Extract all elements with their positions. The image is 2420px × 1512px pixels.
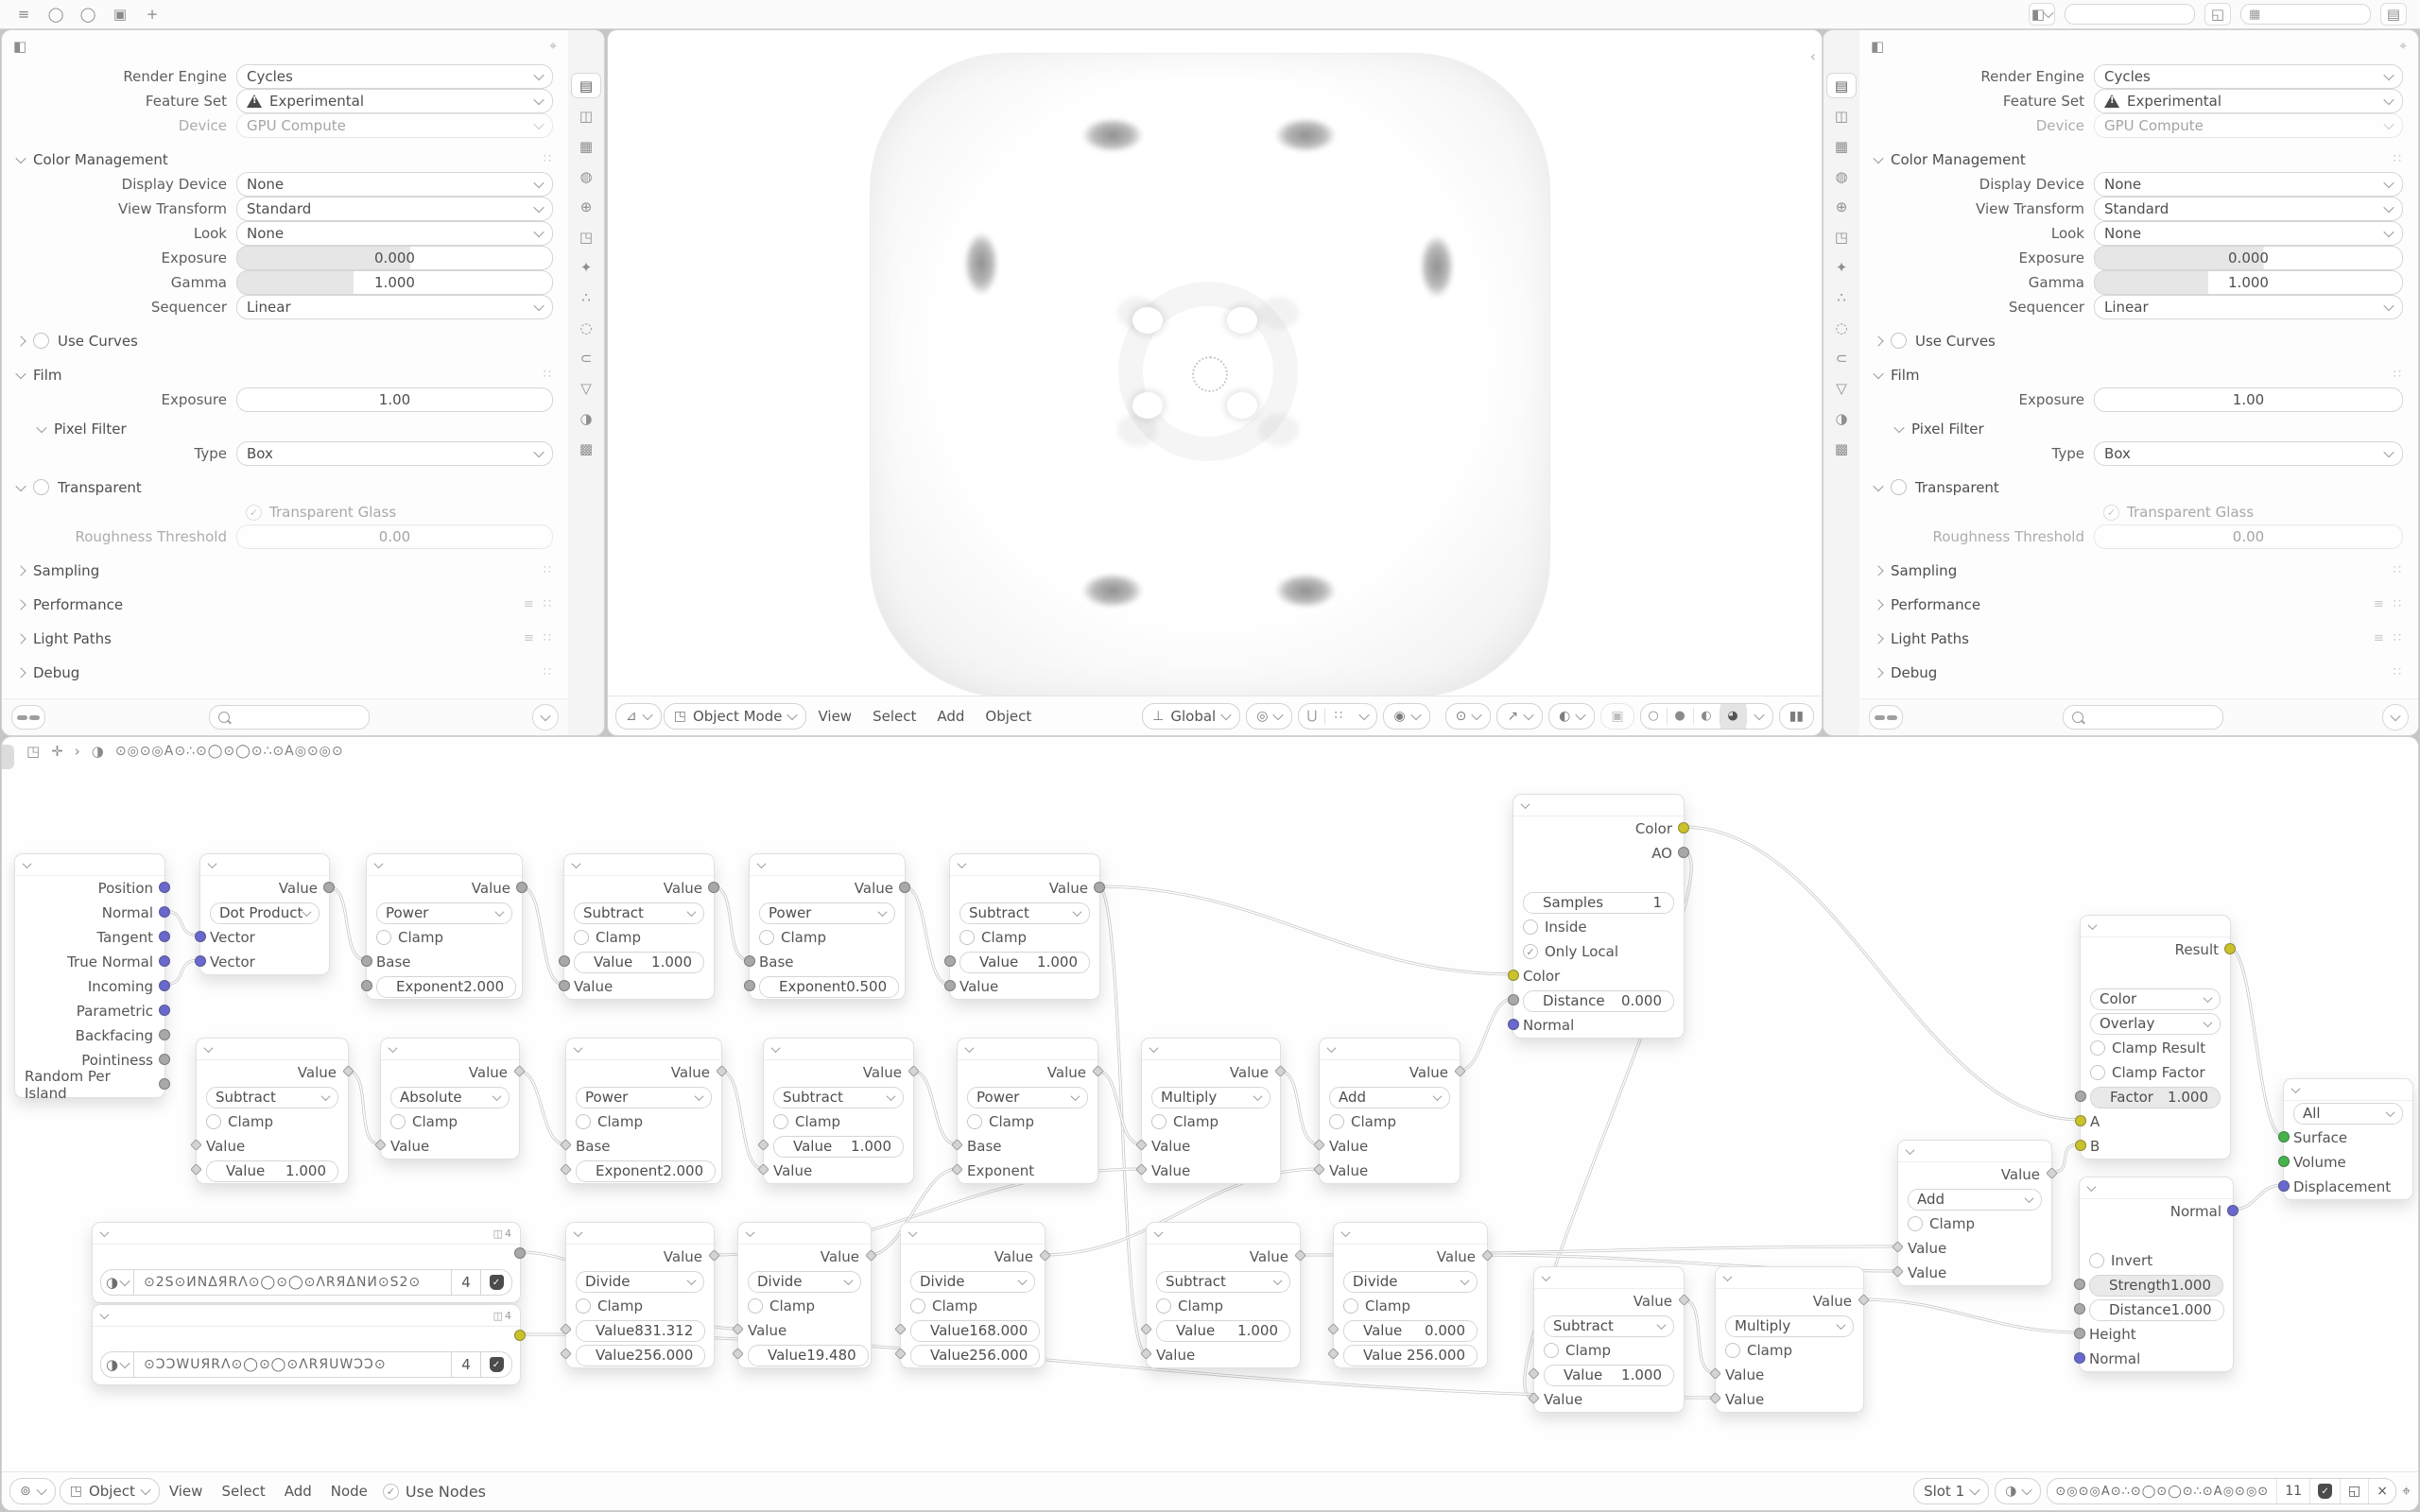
- operation-dropdown-multiply[interactable]: Multiply: [1151, 1087, 1270, 1108]
- node-menu-add[interactable]: Add: [275, 1483, 321, 1500]
- value-field-distance[interactable]: Distance0.000: [1523, 990, 1674, 1012]
- value-field-value[interactable]: Value0.000: [1343, 1320, 1478, 1342]
- prop-dropdown-render-engine[interactable]: Cycles: [2094, 64, 2403, 89]
- socket-a[interactable]: [2075, 1115, 2086, 1126]
- operation-dropdown-power[interactable]: Power: [376, 902, 512, 924]
- socket-base[interactable]: [361, 955, 372, 967]
- checkbox[interactable]: ✓: [246, 505, 262, 521]
- socket-output[interactable]: [514, 1247, 526, 1259]
- filter-toggle-button[interactable]: [1869, 705, 1903, 730]
- prop-dropdown-sequencer[interactable]: Linear: [2094, 295, 2403, 319]
- toggle-section-use-curves[interactable]: Use Curves: [1859, 328, 2414, 353]
- node-header[interactable]: [566, 1039, 721, 1060]
- check-transparent-glass[interactable]: ✓Transparent Glass: [1859, 500, 2414, 524]
- socket-color[interactable]: [1678, 822, 1689, 833]
- section-pixel-filter[interactable]: Pixel Filter: [1859, 416, 2414, 441]
- node-header[interactable]: ◫4: [93, 1223, 520, 1245]
- math-divide-3[interactable]: ValueDivideClampValue168.000Value256.000: [900, 1222, 1046, 1368]
- tab-constraints[interactable]: ⊂: [1827, 346, 1856, 369]
- socket-value[interactable]: [899, 882, 910, 893]
- geometry-node[interactable]: PositionNormalTangentTrue NormalIncoming…: [14, 853, 165, 1098]
- node-header[interactable]: [381, 1039, 519, 1060]
- tab-world[interactable]: ⊕: [1827, 195, 1856, 218]
- properties-search-input[interactable]: [209, 705, 370, 730]
- add-workspace-icon[interactable]: +: [140, 4, 164, 25]
- socket-factor[interactable]: [2075, 1091, 2086, 1102]
- tab-modifiers[interactable]: ✦: [1827, 255, 1856, 279]
- prop-dropdown-feature-set[interactable]: Experimental: [236, 89, 553, 113]
- node-header[interactable]: [15, 854, 164, 876]
- socket-random-per-island[interactable]: [159, 1078, 170, 1090]
- node-header[interactable]: [950, 854, 1099, 876]
- snap-magnet-icon[interactable]: ⋃: [1299, 704, 1324, 729]
- datablock-users-count[interactable]: 4: [452, 1269, 481, 1296]
- checkbox-clamp[interactable]: Clamp: [1725, 1342, 1792, 1359]
- prop-dropdown-look[interactable]: None: [2094, 221, 2403, 246]
- math-divide-2[interactable]: ValueDivideClampValueValue19.480: [737, 1222, 872, 1368]
- value-field-value[interactable]: Value1.000: [1544, 1365, 1674, 1386]
- operation-dropdown-color[interactable]: Color: [2090, 988, 2221, 1010]
- prop-field-exposure[interactable]: 1.00: [236, 387, 553, 412]
- socket-parametric[interactable]: [159, 1005, 170, 1016]
- toggle-section-transparent[interactable]: Transparent: [1859, 474, 2414, 500]
- fake-user-shield[interactable]: ✓: [481, 1269, 512, 1296]
- viewport-canvas[interactable]: ‹: [608, 30, 1822, 696]
- quick-field-2[interactable]: ▦: [2240, 4, 2371, 25]
- checkbox-clamp[interactable]: Clamp: [959, 929, 1027, 946]
- material-users-count[interactable]: 11: [2276, 1479, 2309, 1503]
- section-debug[interactable]: Debug∷: [2, 660, 564, 685]
- operation-dropdown-power[interactable]: Power: [759, 902, 895, 924]
- tab-constraints[interactable]: ⊂: [572, 346, 600, 369]
- section-debug[interactable]: Debug∷: [1859, 660, 2414, 685]
- node-header[interactable]: [1898, 1141, 2051, 1162]
- value-field-value[interactable]: Value168.000: [910, 1320, 1040, 1342]
- socket-normal[interactable]: [1508, 1019, 1519, 1030]
- checkbox-clamp[interactable]: Clamp: [1329, 1113, 1396, 1130]
- node-header[interactable]: [1147, 1223, 1300, 1245]
- preset-list-icon[interactable]: ≡: [524, 597, 534, 611]
- math-add-1[interactable]: ValueAddClampValueValue: [1319, 1038, 1461, 1184]
- node-header[interactable]: [738, 1223, 871, 1245]
- section-light-paths[interactable]: Light Paths≡∷: [2, 626, 564, 651]
- value-field-value[interactable]: Value1.000: [1156, 1320, 1290, 1342]
- browse-id-button[interactable]: ◑: [100, 1351, 134, 1378]
- socket-normal[interactable]: [159, 906, 170, 918]
- ambient-occlusion-node[interactable]: ColorAOSamples1Inside✓Only LocalColorDis…: [1512, 794, 1685, 1039]
- operation-dropdown-power[interactable]: Power: [967, 1087, 1088, 1108]
- prop-field-exposure[interactable]: 1.00: [2094, 387, 2403, 412]
- operation-dropdown-overlay[interactable]: Overlay: [2090, 1013, 2221, 1035]
- value-field-value[interactable]: Value256.000: [576, 1345, 705, 1366]
- socket-value[interactable]: [559, 955, 570, 967]
- vector-math-dot-product[interactable]: ValueDot ProductVectorVector: [199, 853, 330, 975]
- node-header[interactable]: [1142, 1039, 1280, 1060]
- socket-normal[interactable]: [2227, 1205, 2238, 1216]
- gizmos-dropdown[interactable]: ↗: [1496, 703, 1543, 730]
- proportional-edit-dropdown[interactable]: ◉: [1383, 703, 1429, 730]
- section-sampling[interactable]: Sampling∷: [2, 558, 564, 583]
- prop-dropdown-view-transform[interactable]: Standard: [236, 197, 553, 221]
- checkbox-clamp[interactable]: Clamp: [576, 1113, 643, 1130]
- fake-user-shield[interactable]: ✓: [481, 1351, 512, 1378]
- value-field-value[interactable]: Value1.000: [959, 952, 1090, 973]
- tab-world[interactable]: ⊕: [572, 195, 600, 218]
- operation-dropdown-subtract[interactable]: Subtract: [206, 1087, 338, 1108]
- pin-icon[interactable]: ⌖: [2399, 39, 2407, 54]
- node-header[interactable]: [2080, 1177, 2233, 1199]
- operation-dropdown-subtract[interactable]: Subtract: [773, 1087, 904, 1108]
- node-header[interactable]: [566, 1223, 714, 1245]
- tab-particles[interactable]: ∴: [572, 285, 600, 309]
- checkbox-clamp[interactable]: Clamp: [574, 929, 641, 946]
- shading-options-caret[interactable]: [1747, 704, 1772, 729]
- bump-node[interactable]: NormalInvertStrength1.000Distance1.000He…: [2079, 1177, 2234, 1372]
- prop-dropdown-display-device[interactable]: None: [2094, 172, 2403, 197]
- socket-backfacing[interactable]: [159, 1029, 170, 1040]
- section-checkbox[interactable]: [33, 333, 49, 349]
- value-field-value[interactable]: Value1.000: [574, 952, 704, 973]
- math-power-2[interactable]: ValuePowerClampBaseExponent0.500: [749, 853, 906, 1000]
- operation-dropdown-power[interactable]: Power: [576, 1087, 712, 1108]
- preset-list-icon[interactable]: ≡: [2374, 597, 2384, 611]
- display-settings-icon[interactable]: ◧: [2029, 3, 2055, 26]
- shader-type-dropdown[interactable]: ◳ Object: [60, 1478, 160, 1504]
- prop-dropdown-sequencer[interactable]: Linear: [236, 295, 553, 319]
- section-pixel-filter[interactable]: Pixel Filter: [2, 416, 564, 441]
- duplicate-icon[interactable]: ◱: [2204, 3, 2231, 26]
- socket-value[interactable]: [323, 882, 335, 893]
- socket-vector[interactable]: [195, 955, 206, 967]
- shading-wireframe-button[interactable]: ○: [1641, 704, 1667, 729]
- checkbox[interactable]: ✓: [2103, 505, 2119, 521]
- check-transparent-glass[interactable]: ✓Transparent Glass: [2, 500, 564, 524]
- prop-dropdown-look[interactable]: None: [236, 221, 553, 246]
- prop-slider-gamma[interactable]: 1.000: [2094, 270, 2403, 295]
- value-field-value[interactable]: Value1.000: [773, 1136, 904, 1158]
- browse-material-dropdown[interactable]: ◑: [1995, 1478, 2041, 1504]
- value-field-value[interactable]: Value1.000: [206, 1160, 338, 1182]
- math-subtract-2[interactable]: ValueSubtractClampValue1.000Value: [949, 853, 1100, 1000]
- node-header[interactable]: [1534, 1267, 1684, 1289]
- tab-data[interactable]: ▽: [1827, 376, 1856, 400]
- math-subtract-1[interactable]: ValueSubtractClampValue1.000Value: [563, 853, 715, 1000]
- section-checkbox[interactable]: [1891, 479, 1907, 495]
- prop-field-roughness-threshold[interactable]: 0.00: [2094, 524, 2403, 549]
- slot-dropdown[interactable]: Slot 1: [1913, 1478, 1989, 1504]
- operation-dropdown-divide[interactable]: Divide: [748, 1271, 861, 1293]
- checkbox-clamp[interactable]: Clamp: [967, 1113, 1034, 1130]
- tab-modifiers[interactable]: ✦: [572, 255, 600, 279]
- socket-strength[interactable]: [2074, 1279, 2085, 1290]
- app-menu-icon[interactable]: ≡: [11, 4, 36, 25]
- section-color-management[interactable]: Color Management∷: [1859, 146, 2414, 172]
- object-visibility-dropdown[interactable]: ⊙: [1445, 703, 1492, 730]
- preset-list-icon[interactable]: ≡: [524, 631, 534, 645]
- tab-scene[interactable]: ◍: [1827, 164, 1856, 188]
- math-subtract-3[interactable]: ValueSubtractClampValueValue1.000: [196, 1038, 349, 1184]
- prop-dropdown-view-transform[interactable]: Standard: [2094, 197, 2403, 221]
- shading-solid-button[interactable]: ●: [1668, 704, 1693, 729]
- math-power-4[interactable]: ValuePowerClampBaseExponent: [957, 1038, 1098, 1184]
- operation-dropdown-divide[interactable]: Divide: [910, 1271, 1035, 1293]
- value-field-exponent[interactable]: Exponent2.000: [576, 1160, 716, 1182]
- toggle-section-use-curves[interactable]: Use Curves: [2, 328, 564, 353]
- new-material-button[interactable]: ◱: [2340, 1479, 2368, 1503]
- section-checkbox[interactable]: [33, 479, 49, 495]
- datablock-name-field[interactable]: ⊙ƆƆWUЯRΛ⊙◯⊙◯⊙ΛRЯUWƆƆ⊙: [134, 1351, 452, 1378]
- value-field-distance[interactable]: Distance1.000: [2089, 1299, 2224, 1321]
- tab-object[interactable]: ◳: [572, 225, 600, 249]
- checkbox-clamp[interactable]: Clamp: [1156, 1297, 1223, 1314]
- socket-output[interactable]: [514, 1330, 526, 1341]
- socket-pointiness[interactable]: [159, 1054, 170, 1065]
- pin-icon[interactable]: ⌖: [2402, 1482, 2411, 1501]
- menu-object[interactable]: Object: [976, 708, 1041, 725]
- operation-dropdown-subtract[interactable]: Subtract: [1544, 1315, 1674, 1337]
- math-add-2[interactable]: ValueAddClampValueValue: [1897, 1140, 2052, 1286]
- socket-value[interactable]: [708, 882, 719, 893]
- section-performance[interactable]: Performance≡∷: [1859, 592, 2414, 617]
- socket-value[interactable]: [944, 980, 956, 991]
- operation-dropdown-all[interactable]: All: [2293, 1103, 2403, 1125]
- overlays-dropdown[interactable]: ◐: [1548, 703, 1595, 730]
- node-menu-select[interactable]: Select: [212, 1483, 274, 1500]
- menu-select[interactable]: Select: [863, 708, 925, 725]
- socket-tangent[interactable]: [159, 931, 170, 942]
- checkbox-inside[interactable]: Inside: [1523, 919, 1587, 936]
- checkbox-clamp[interactable]: Clamp: [206, 1113, 273, 1130]
- prop-dropdown-device[interactable]: GPU Compute: [236, 113, 553, 138]
- value-field-samples[interactable]: Samples1: [1523, 892, 1674, 914]
- checkbox-clamp[interactable]: Clamp: [1343, 1297, 1410, 1314]
- pin-icon[interactable]: ⌖: [549, 39, 557, 54]
- snap-control[interactable]: ⋃ ∷: [1298, 703, 1377, 730]
- socket-exponent[interactable]: [361, 980, 372, 991]
- checkbox-clamp[interactable]: Clamp: [376, 929, 443, 946]
- node-canvas[interactable]: PositionNormalTangentTrue NormalIncoming…: [2, 737, 2418, 1510]
- node-header[interactable]: [750, 854, 905, 876]
- operation-dropdown-divide[interactable]: Divide: [1343, 1271, 1478, 1293]
- tab-material[interactable]: ◑: [1827, 406, 1856, 430]
- operation-dropdown-add[interactable]: Add: [1329, 1087, 1450, 1108]
- node-header[interactable]: ◫4: [93, 1305, 520, 1327]
- checkbox-clamp[interactable]: Clamp: [1908, 1215, 1975, 1232]
- value-field-value[interactable]: Value256.000: [910, 1345, 1040, 1366]
- math-power-3[interactable]: ValuePowerClampBaseExponent2.000: [565, 1038, 722, 1184]
- tab-material[interactable]: ◑: [572, 406, 600, 430]
- value-field-strength[interactable]: Strength1.000: [2089, 1275, 2223, 1297]
- value-field-value[interactable]: Value256.000: [1343, 1345, 1478, 1366]
- socket-value[interactable]: [944, 955, 956, 967]
- socket-distance[interactable]: [1508, 994, 1519, 1005]
- xray-toggle[interactable]: ▣: [1600, 703, 1633, 730]
- tab-scene[interactable]: ◍: [572, 164, 600, 188]
- section-film[interactable]: Film∷: [2, 362, 564, 387]
- checkbox-clamp[interactable]: Clamp: [910, 1297, 977, 1314]
- socket-height[interactable]: [2074, 1328, 2085, 1339]
- section-light-paths[interactable]: Light Paths≡∷: [1859, 626, 2414, 651]
- tab-view-layer[interactable]: ▦: [1827, 134, 1856, 158]
- workspace-icon-1[interactable]: ◯: [43, 4, 68, 25]
- workspace-icon-2[interactable]: ◯: [76, 4, 100, 25]
- datablock-name-field[interactable]: ⊙2S⊙ИNΔЯRΛ⊙◯⊙◯⊙ΛRЯΔNИ⊙S2⊙: [134, 1269, 452, 1296]
- node-header[interactable]: [2081, 916, 2230, 937]
- node-menu-node[interactable]: Node: [321, 1483, 377, 1500]
- math-multiply-1[interactable]: ValueMultiplyClampValueValue: [1141, 1038, 1281, 1184]
- prop-dropdown-type[interactable]: Box: [236, 441, 553, 466]
- shading-rendered-button[interactable]: ◕: [1720, 704, 1746, 729]
- filter-options-button[interactable]: [2382, 704, 2409, 730]
- operation-dropdown-dot-product[interactable]: Dot Product: [210, 902, 320, 924]
- transform-orientation-dropdown[interactable]: ⊥ Global: [1142, 703, 1240, 730]
- socket-value[interactable]: [559, 980, 570, 991]
- tab-physics[interactable]: ◌: [572, 316, 600, 339]
- socket-displacement[interactable]: [2278, 1180, 2290, 1192]
- node-header[interactable]: [564, 854, 714, 876]
- material-output-node[interactable]: AllSurfaceVolumeDisplacement: [2283, 1078, 2413, 1200]
- socket-surface[interactable]: [2278, 1131, 2290, 1143]
- menu-add[interactable]: Add: [927, 708, 974, 725]
- prop-dropdown-display-device[interactable]: None: [236, 172, 553, 197]
- node-header[interactable]: [1513, 795, 1684, 816]
- node-menu-view[interactable]: View: [160, 1483, 213, 1500]
- socket-normal[interactable]: [2074, 1352, 2085, 1364]
- tab-particles[interactable]: ∴: [1827, 285, 1856, 309]
- quick-field-1[interactable]: [2065, 4, 2195, 25]
- node-header[interactable]: [2284, 1079, 2412, 1101]
- node-header[interactable]: [764, 1039, 913, 1060]
- checkbox-clamp[interactable]: Clamp: [759, 929, 826, 946]
- node-header[interactable]: [901, 1223, 1045, 1245]
- editor-type-dropdown-node[interactable]: ⊚: [9, 1478, 56, 1504]
- filter-toggle-button[interactable]: [11, 705, 45, 730]
- operation-dropdown-divide[interactable]: Divide: [576, 1271, 704, 1293]
- node-header[interactable]: [1716, 1267, 1863, 1289]
- preset-list-icon[interactable]: ≡: [2374, 631, 2384, 645]
- image-texture-node-1[interactable]: ◫4◑⊙2S⊙ИNΔЯRΛ⊙◯⊙◯⊙ΛRЯΔNИ⊙S2⊙4✓: [92, 1222, 521, 1303]
- socket-position[interactable]: [159, 882, 170, 893]
- operation-dropdown-add[interactable]: Add: [1908, 1189, 2042, 1211]
- toggle-section-transparent[interactable]: Transparent: [2, 474, 564, 500]
- checkbox-clamp[interactable]: Clamp: [390, 1113, 458, 1130]
- socket-ao[interactable]: [1678, 847, 1689, 858]
- socket-result[interactable]: [2224, 943, 2236, 954]
- filter-options-button[interactable]: [532, 704, 559, 730]
- pause-render-button[interactable]: ▮▮: [1779, 703, 1814, 730]
- fake-user-shield[interactable]: ✓: [2309, 1479, 2340, 1503]
- socket-vector[interactable]: [195, 931, 206, 942]
- tab-render[interactable]: ▤: [572, 74, 600, 97]
- properties-editor-icon[interactable]: ◧: [13, 38, 26, 55]
- node-header[interactable]: [197, 1039, 348, 1060]
- tab-texture[interactable]: ▩: [1827, 437, 1856, 460]
- datablock-users-count[interactable]: 4: [452, 1351, 481, 1378]
- node-header[interactable]: [1334, 1223, 1487, 1245]
- section-film[interactable]: Film∷: [1859, 362, 2414, 387]
- prop-field-roughness-threshold[interactable]: 0.00: [236, 524, 553, 549]
- node-header[interactable]: [958, 1039, 1098, 1060]
- checkbox-clamp[interactable]: Clamp: [1544, 1342, 1611, 1359]
- value-field-value[interactable]: Value831.312: [576, 1320, 705, 1342]
- socket-value[interactable]: [1094, 882, 1105, 893]
- value-field-factor[interactable]: Factor1.000: [2090, 1087, 2221, 1108]
- operation-dropdown-subtract[interactable]: Subtract: [574, 902, 704, 924]
- prop-slider-exposure[interactable]: 0.000: [2094, 246, 2403, 270]
- tab-output[interactable]: ◫: [1827, 104, 1856, 128]
- checkbox-only-local[interactable]: ✓Only Local: [1523, 943, 1618, 960]
- sidebar-toggle-icon[interactable]: ‹: [1810, 47, 1816, 65]
- checkbox-clamp[interactable]: Clamp: [576, 1297, 643, 1314]
- socket-base[interactable]: [744, 955, 755, 967]
- section-performance[interactable]: Performance≡∷: [2, 592, 564, 617]
- value-field-exponent[interactable]: Exponent0.500: [759, 976, 899, 998]
- tab-data[interactable]: ▽: [572, 376, 600, 400]
- tab-view-layer[interactable]: ▦: [572, 134, 600, 158]
- window-list-icon[interactable]: ▤: [2380, 3, 2407, 26]
- checkbox-invert[interactable]: Invert: [2089, 1252, 2152, 1269]
- tab-output[interactable]: ◫: [572, 104, 600, 128]
- editor-type-dropdown[interactable]: ⊿: [615, 703, 662, 730]
- material-name-field[interactable]: ⊙◎⊙◎A⊙∴⊙◯⊙◯⊙∴⊙A◎⊙◎⊙: [2048, 1479, 2276, 1503]
- math-divide-1[interactable]: ValueDivideClampValue831.312Value256.000: [565, 1222, 715, 1368]
- checkbox-clamp-result[interactable]: Clamp Result: [2090, 1039, 2205, 1057]
- mix-color-node[interactable]: ResultColorOverlayClamp ResultClamp Fact…: [2080, 915, 2231, 1160]
- value-field-exponent[interactable]: Exponent2.000: [376, 976, 516, 998]
- prop-dropdown-feature-set[interactable]: Experimental: [2094, 89, 2403, 113]
- checkbox-clamp-factor[interactable]: Clamp Factor: [2090, 1064, 2205, 1081]
- socket-exponent[interactable]: [744, 980, 755, 991]
- math-power-1[interactable]: ValuePowerClampBaseExponent2.000: [366, 853, 523, 1000]
- snap-target-icon[interactable]: ∷: [1325, 704, 1351, 729]
- tab-render[interactable]: ▤: [1827, 74, 1856, 97]
- shading-material-preview-button[interactable]: ◐: [1694, 704, 1720, 729]
- workspace-icon-3[interactable]: ▣: [108, 4, 132, 25]
- socket-distance[interactable]: [2074, 1303, 2085, 1314]
- snap-caret[interactable]: [1351, 704, 1376, 729]
- checkbox-clamp[interactable]: Clamp: [773, 1113, 840, 1130]
- operation-dropdown-subtract[interactable]: Subtract: [959, 902, 1090, 924]
- tab-texture[interactable]: ▩: [572, 437, 600, 460]
- use-nodes-checkbox[interactable]: ✓: [383, 1484, 399, 1500]
- operation-dropdown-absolute[interactable]: Absolute: [390, 1087, 510, 1108]
- mode-dropdown[interactable]: ◳ Object Mode: [664, 703, 807, 730]
- math-absolute[interactable]: ValueAbsoluteClampValue: [380, 1038, 520, 1160]
- operation-dropdown-multiply[interactable]: Multiply: [1725, 1315, 1854, 1337]
- value-field-value[interactable]: Value19.480: [748, 1345, 869, 1366]
- math-multiply-2[interactable]: ValueMultiplyClampValueValue: [1715, 1266, 1864, 1413]
- math-subtract-6[interactable]: ValueSubtractClampValue1.000Value: [1533, 1266, 1685, 1413]
- checkbox-clamp[interactable]: Clamp: [748, 1297, 815, 1314]
- prop-dropdown-device[interactable]: GPU Compute: [2094, 113, 2403, 138]
- socket-volume[interactable]: [2278, 1156, 2290, 1167]
- math-subtract-4[interactable]: ValueSubtractClampValue1.000Value: [763, 1038, 914, 1184]
- tab-physics[interactable]: ◌: [1827, 316, 1856, 339]
- socket-color[interactable]: [1508, 970, 1519, 981]
- pivot-point-dropdown[interactable]: ◎: [1246, 703, 1292, 730]
- node-header[interactable]: [200, 854, 329, 876]
- prop-dropdown-type[interactable]: Box: [2094, 441, 2403, 466]
- tab-object[interactable]: ◳: [1827, 225, 1856, 249]
- operation-dropdown-subtract[interactable]: Subtract: [1156, 1271, 1290, 1293]
- socket-b[interactable]: [2075, 1140, 2086, 1151]
- section-sampling[interactable]: Sampling∷: [1859, 558, 2414, 583]
- socket-incoming[interactable]: [159, 980, 170, 991]
- socket-value[interactable]: [516, 882, 527, 893]
- section-color-management[interactable]: Color Management∷: [2, 146, 564, 172]
- prop-dropdown-render-engine[interactable]: Cycles: [236, 64, 553, 89]
- section-checkbox[interactable]: [1891, 333, 1907, 349]
